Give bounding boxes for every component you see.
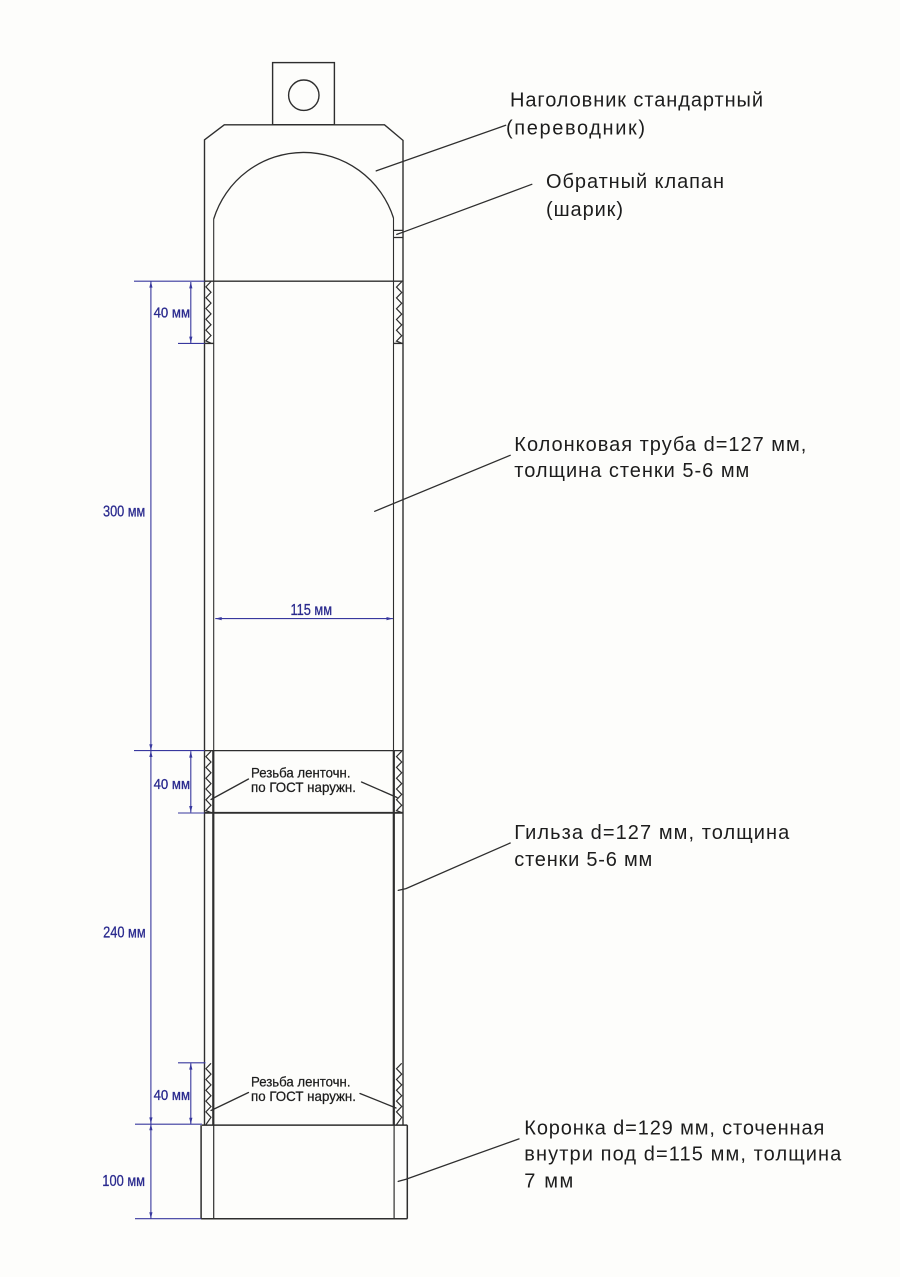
svg-text:по ГОСТ наружн.: по ГОСТ наружн. — [251, 779, 356, 795]
svg-text:внутри под d=115 мм, толщина: внутри под d=115 мм, толщина — [524, 1143, 842, 1165]
svg-text:по ГОСТ наружн.: по ГОСТ наружн. — [251, 1088, 356, 1104]
svg-text:115 мм: 115 мм — [291, 602, 333, 619]
svg-text:300 мм: 300 мм — [103, 504, 145, 521]
svg-text:7 мм: 7 мм — [524, 1170, 573, 1192]
svg-text:толщина стенки 5-6 мм: толщина стенки 5-6 мм — [514, 460, 749, 482]
svg-text:Наголовник стандартный: Наголовник стандартный — [510, 90, 763, 112]
svg-text:40 мм: 40 мм — [154, 306, 190, 322]
svg-text:40 мм: 40 мм — [154, 1088, 190, 1104]
svg-text:Колонковая труба d=127 мм,: Колонковая труба d=127 мм, — [514, 434, 806, 456]
svg-text:Гильза d=127 мм, толщина: Гильза d=127 мм, толщина — [514, 822, 790, 844]
svg-text:Коронка d=129 мм, сточенная: Коронка d=129 мм, сточенная — [524, 1117, 824, 1139]
svg-text:(переводник): (переводник) — [506, 118, 645, 140]
svg-text:стенки 5-6 мм: стенки 5-6 мм — [514, 849, 652, 871]
svg-text:40 мм: 40 мм — [154, 777, 190, 793]
svg-text:100 мм: 100 мм — [102, 1173, 145, 1190]
svg-text:240 мм: 240 мм — [103, 925, 146, 942]
svg-text:Обратный клапан: Обратный клапан — [546, 171, 724, 193]
svg-text:(шарик): (шарик) — [546, 199, 623, 221]
